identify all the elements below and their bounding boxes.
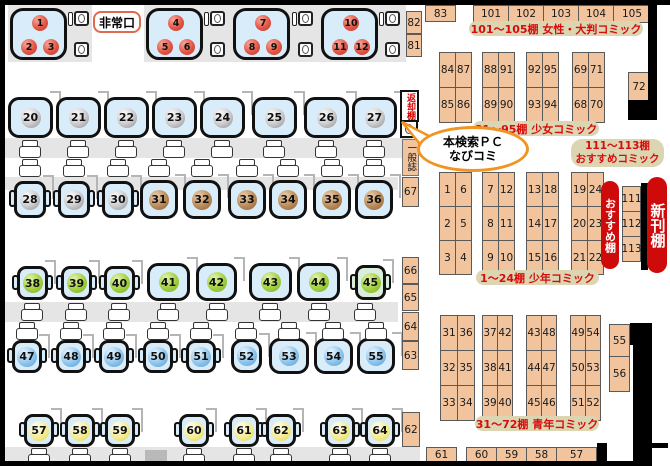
armrest-left: [320, 422, 327, 437]
shelf-12: 12: [498, 172, 515, 207]
chair-icon: [365, 322, 387, 339]
room-53[interactable]: 53: [269, 338, 309, 374]
shelf-92: 92: [526, 52, 543, 88]
armrest-left: [12, 275, 19, 290]
room-57[interactable]: 57: [24, 414, 54, 447]
shelf-48: 48: [541, 315, 557, 351]
shelf-13: 13: [526, 172, 543, 207]
seat-number-badge: 39: [67, 273, 87, 293]
shelf-93: 93: [526, 87, 543, 123]
shelf-44: 44: [526, 350, 542, 386]
armrest-left: [100, 422, 107, 437]
seat-number-badge: 11: [332, 39, 348, 55]
seat-number-badge: 63: [330, 421, 350, 441]
armrest-left: [99, 275, 106, 290]
seat-number-badge: 59: [110, 421, 130, 441]
room-1-2-3[interactable]: 123: [10, 8, 67, 60]
seat-number-badge: 58: [70, 421, 90, 441]
room-50[interactable]: 50: [143, 340, 173, 373]
seat-number-badge: 27: [365, 108, 385, 128]
section-label-womens-comics: 101～105棚 女性・大判コミック: [469, 21, 643, 36]
armrest-right: [46, 275, 53, 290]
chair-icon: [259, 303, 281, 320]
armrest-left: [56, 275, 63, 290]
seat-number-badge: 20: [21, 108, 41, 128]
armrest-right: [353, 422, 360, 437]
room-64[interactable]: 64: [365, 414, 395, 447]
seat-number-badge: 61: [234, 421, 254, 441]
shelf-68: 68: [572, 87, 589, 123]
room-35[interactable]: 35: [313, 180, 351, 219]
chair-icon: [19, 140, 41, 157]
chair-icon: [19, 159, 41, 176]
chair-icon: [235, 322, 257, 339]
shelf-56: 56: [609, 356, 630, 392]
room-fixtures-icon: [292, 11, 319, 57]
armrest-right: [52, 422, 59, 437]
section-label-recommend-line2: おすすめコミック: [576, 153, 660, 166]
chair-icon: [21, 303, 43, 320]
callout-line1: 本検索ＰＣ: [443, 135, 503, 149]
room-28[interactable]: 28: [14, 181, 46, 218]
chair-icon: [157, 303, 179, 320]
section-label-shonen-comics: 1～24棚 少年コミック: [476, 270, 599, 285]
seat-number-badge: 36: [364, 190, 384, 210]
room-59[interactable]: 59: [105, 414, 135, 447]
chair-icon: [103, 322, 125, 339]
room-54[interactable]: 54: [314, 338, 353, 374]
chair-icon: [65, 303, 87, 320]
room-7-8-9[interactable]: 789: [233, 8, 290, 60]
seat-number-badge: 44: [309, 272, 329, 292]
seat-number-badge: 5: [157, 39, 173, 55]
shelf-32: 32: [440, 350, 458, 386]
shelf-11: 11: [498, 206, 515, 241]
armrest-left: [360, 422, 367, 437]
shelf-37: 37: [482, 315, 498, 351]
shelf-71: 71: [588, 52, 605, 88]
room-10-11-12[interactable]: 101112: [321, 8, 378, 60]
room-25[interactable]: 25: [252, 97, 297, 138]
section-label-recommend-comics: 111～113棚 おすすめコミック: [571, 139, 664, 167]
room-43[interactable]: 43: [249, 263, 292, 301]
shelf-5: 5: [455, 206, 472, 241]
seat-number-badge: 43: [261, 272, 281, 292]
wall-segment: [597, 443, 607, 463]
shelf-72: 72: [628, 72, 650, 101]
room-45[interactable]: 45: [355, 265, 386, 300]
locker-icon: [68, 11, 95, 26]
seat-number-badge: 24: [213, 108, 233, 128]
chair-icon: [315, 140, 337, 157]
seat-number-badge: 1: [32, 15, 48, 31]
seat-number-badge: 26: [317, 108, 337, 128]
chair-icon: [190, 322, 212, 339]
seat-number-badge: 29: [64, 190, 84, 210]
shelf-86: 86: [455, 87, 472, 123]
shelf-61: 61: [426, 447, 457, 462]
shelf-67: 67: [402, 177, 419, 207]
return-shelf-label: 返却棚: [400, 90, 419, 122]
seat-number-badge: 62: [271, 421, 291, 441]
chair-icon: [148, 159, 170, 176]
armrest-right: [132, 190, 139, 207]
section-label-seinen-comics: 31～72棚 青年コミック: [475, 416, 599, 431]
seat-number-badge: 3: [43, 39, 59, 55]
shelf-58: 58: [526, 447, 557, 462]
chair-icon: [191, 159, 213, 176]
shelf-41: 41: [497, 350, 513, 386]
armrest-left: [174, 422, 181, 437]
desk-band: [0, 138, 412, 158]
room-55[interactable]: 55: [357, 338, 395, 374]
room-44[interactable]: 44: [297, 263, 340, 301]
chair-icon: [107, 159, 129, 176]
room-32[interactable]: 32: [183, 180, 221, 219]
wall-segment: [0, 0, 670, 5]
room-47[interactable]: 47: [12, 340, 42, 373]
room-52[interactable]: 52: [231, 339, 262, 373]
shelf-34: 34: [457, 385, 475, 421]
locker-icon: [385, 42, 406, 57]
wall-segment: [630, 323, 652, 345]
seat-number-badge: 4: [168, 15, 184, 31]
recommend-shelf-label: おすすめ棚: [601, 181, 619, 269]
armrest-right: [133, 275, 140, 290]
chair-icon: [115, 140, 137, 157]
room-38[interactable]: 38: [17, 266, 48, 300]
shelf-1: 1: [439, 172, 456, 207]
shelf-87: 87: [455, 52, 472, 88]
search-pc-callout: 本検索ＰＣ なびコミ: [417, 126, 529, 172]
room-24[interactable]: 24: [200, 97, 245, 138]
chair-icon: [163, 140, 185, 157]
shelf-85: 85: [439, 87, 456, 123]
room-41[interactable]: 41: [147, 263, 190, 301]
shelf-94: 94: [542, 87, 559, 123]
shelf-20: 20: [571, 206, 588, 241]
seat-number-badge: 23: [165, 108, 185, 128]
armrest-right: [207, 422, 214, 437]
shelf-38: 38: [482, 350, 498, 386]
shelf-70: 70: [588, 87, 605, 123]
shelf-36: 36: [457, 315, 475, 351]
seat-number-badge: 57: [29, 421, 49, 441]
shelf-35: 35: [457, 350, 475, 386]
seat-number-badge: 32: [192, 190, 212, 210]
shelf-42: 42: [497, 315, 513, 351]
desk-band: [0, 447, 420, 462]
chair-icon: [108, 303, 130, 320]
shelf-65: 65: [402, 284, 419, 311]
shelf-17: 17: [542, 206, 559, 241]
shelf-50: 50: [570, 350, 586, 386]
seat-number-badge: 51: [191, 347, 211, 367]
armrest-right: [127, 348, 134, 363]
room-33[interactable]: 33: [228, 180, 266, 219]
seat-number-badge: 2: [21, 39, 37, 55]
room-31[interactable]: 31: [140, 180, 178, 219]
room-39[interactable]: 39: [61, 266, 92, 300]
armrest-right: [214, 348, 221, 363]
emergency-exit-label: 非常口: [93, 11, 141, 33]
chair-icon: [278, 322, 300, 339]
seat-number-badge: 60: [184, 421, 204, 441]
room-63[interactable]: 63: [325, 414, 355, 447]
shelf-113: 113: [622, 236, 641, 262]
locker-icon: [298, 42, 319, 57]
armrest-left: [53, 190, 60, 207]
room-fixtures-icon: [68, 11, 95, 57]
armrest-left: [181, 348, 188, 363]
armrest-left: [60, 422, 67, 437]
seat-number-badge: 31: [149, 190, 169, 210]
room-62[interactable]: 62: [266, 414, 296, 447]
shelf-83: 83: [425, 5, 456, 22]
shelf-7: 7: [482, 172, 499, 207]
seat-number-badge: 45: [361, 273, 381, 293]
section-label-recommend-line1: 111～113棚: [585, 140, 650, 153]
room-27[interactable]: 27: [352, 97, 397, 138]
chair-icon: [363, 159, 385, 176]
shelf-18: 18: [542, 172, 559, 207]
locker-icon: [379, 11, 406, 26]
seat-number-badge: 35: [322, 190, 342, 210]
room-4-5-6[interactable]: 456: [146, 8, 203, 60]
room-48[interactable]: 48: [56, 340, 86, 373]
seat-number-badge: 49: [104, 347, 124, 367]
room-30[interactable]: 30: [102, 181, 134, 218]
chair-icon: [211, 140, 233, 157]
chair-icon: [63, 159, 85, 176]
room-20[interactable]: 20: [8, 97, 53, 138]
desk-band: [0, 302, 398, 322]
room-21[interactable]: 21: [56, 97, 101, 138]
armrest-right: [40, 348, 47, 363]
floor-map: 非常口 返却棚 一般誌 おすすめ棚 新刊棚 101～105棚 女性・大判コミック…: [0, 0, 670, 466]
seat-number-badge: 25: [265, 108, 285, 128]
locker-icon: [210, 42, 231, 57]
room-58[interactable]: 58: [65, 414, 95, 447]
chair-icon: [236, 159, 258, 176]
seat-number-badge: 50: [148, 347, 168, 367]
seat-number-badge: 53: [279, 346, 299, 366]
seat-number-badge: 33: [237, 190, 257, 210]
room-51[interactable]: 51: [186, 340, 216, 373]
room-42[interactable]: 42: [196, 263, 237, 301]
shelf-47: 47: [541, 350, 557, 386]
room-fixtures-icon: [379, 11, 406, 57]
wall-segment: [633, 443, 668, 448]
seat-number-badge: 21: [69, 108, 89, 128]
shelf-89: 89: [482, 87, 499, 123]
armrest-right: [171, 348, 178, 363]
shelf-4: 4: [455, 240, 472, 275]
locker-icon: [292, 11, 319, 26]
shelf-59: 59: [496, 447, 527, 462]
shelf-31: 31: [440, 315, 458, 351]
shelf-69: 69: [572, 52, 589, 88]
armrest-left: [94, 348, 101, 363]
armrest-left: [51, 348, 58, 363]
armrest-right: [384, 274, 391, 290]
armrest-left: [9, 190, 16, 207]
shelf-66: 66: [402, 257, 419, 284]
shelf-19: 19: [571, 172, 588, 207]
room-34[interactable]: 34: [269, 180, 307, 219]
shelf-55: 55: [609, 324, 630, 357]
room-fixtures-icon: [204, 11, 231, 57]
room-29[interactable]: 29: [58, 181, 90, 218]
shelf-81: 81: [406, 34, 422, 57]
shelf-3: 3: [439, 240, 456, 275]
chair-icon: [16, 322, 38, 339]
room-36[interactable]: 36: [355, 180, 393, 219]
armrest-right: [84, 348, 91, 363]
seat-number-badge: 8: [244, 39, 260, 55]
seat-number-badge: 30: [108, 190, 128, 210]
seat-number-badge: 34: [278, 190, 298, 210]
shelf-8: 8: [482, 206, 499, 241]
chair-icon: [321, 159, 343, 176]
shelf-54: 54: [585, 315, 601, 351]
chair-icon: [263, 140, 285, 157]
shelf-112: 112: [622, 211, 641, 237]
shelf-49: 49: [570, 315, 586, 351]
seat-number-badge: 55: [366, 346, 386, 366]
armrest-left: [97, 190, 104, 207]
armrest-right: [133, 422, 140, 437]
armrest-right: [90, 275, 97, 290]
shelf-33: 33: [440, 385, 458, 421]
armrest-right: [93, 422, 100, 437]
seat-number-badge: 47: [17, 347, 37, 367]
armrest-right: [88, 190, 95, 207]
chair-icon: [206, 303, 228, 320]
room-60[interactable]: 60: [179, 414, 209, 447]
seat-number-badge: 40: [110, 273, 130, 293]
shelf-82: 82: [406, 11, 422, 34]
room-40[interactable]: 40: [104, 266, 135, 300]
shelf-2: 2: [439, 206, 456, 241]
seat-number-badge: 9: [266, 39, 282, 55]
armrest-left: [7, 348, 14, 363]
armrest-left: [19, 422, 26, 437]
shelf-90: 90: [498, 87, 515, 123]
shelf-60: 60: [466, 447, 497, 462]
seat-number-badge: 64: [370, 421, 390, 441]
armrest-right: [393, 422, 400, 437]
armrest-left: [350, 274, 357, 290]
chair-icon: [67, 140, 89, 157]
seat-number-badge: 7: [255, 15, 271, 31]
seat-number-badge: 42: [207, 272, 227, 292]
room-49[interactable]: 49: [99, 340, 129, 373]
shelf-57: 57: [556, 447, 597, 462]
chair-icon: [308, 303, 330, 320]
room-26[interactable]: 26: [304, 97, 349, 138]
locker-icon: [74, 42, 95, 57]
chair-icon: [322, 322, 344, 339]
seat-number-badge: 10: [343, 15, 359, 31]
chair-icon: [277, 159, 299, 176]
shelf-43: 43: [526, 315, 542, 351]
callout-line2: なびコミ: [449, 149, 497, 163]
room-61[interactable]: 61: [229, 414, 259, 447]
seat-number-badge: 54: [324, 346, 344, 366]
seat-number-badge: 52: [237, 346, 257, 366]
room-23[interactable]: 23: [152, 97, 197, 138]
seat-number-badge: 6: [179, 39, 195, 55]
armrest-right: [44, 190, 51, 207]
shelf-63: 63: [402, 341, 419, 370]
shelf-91: 91: [498, 52, 515, 88]
seat-number-badge: 48: [61, 347, 81, 367]
shelf-6: 6: [455, 172, 472, 207]
wall-segment: [0, 461, 652, 466]
new-arrivals-shelf-label: 新刊棚: [647, 177, 667, 273]
seat-number-badge: 12: [354, 39, 370, 55]
wall-segment: [628, 100, 657, 120]
shelf-62: 62: [402, 412, 420, 447]
chair-icon: [147, 322, 169, 339]
shelf-88: 88: [482, 52, 499, 88]
shelf-111: 111: [622, 186, 641, 212]
shelf-14: 14: [526, 206, 543, 241]
chair-icon: [60, 322, 82, 339]
shelf-64: 64: [402, 312, 419, 341]
chair-icon: [363, 140, 385, 157]
wall-segment: [0, 0, 5, 466]
armrest-left: [138, 348, 145, 363]
room-22[interactable]: 22: [104, 97, 149, 138]
armrest-left: [261, 422, 268, 437]
seat-number-badge: 22: [117, 108, 137, 128]
shelf-84: 84: [439, 52, 456, 88]
chair-icon: [354, 303, 376, 320]
armrest-right: [294, 422, 301, 437]
shelf-53: 53: [585, 350, 601, 386]
armrest-left: [224, 422, 231, 437]
seat-number-badge: 41: [159, 272, 179, 292]
shelf-95: 95: [542, 52, 559, 88]
seat-number-badge: 38: [23, 273, 43, 293]
seat-number-badge: 28: [20, 190, 40, 210]
locker-icon: [204, 11, 231, 26]
